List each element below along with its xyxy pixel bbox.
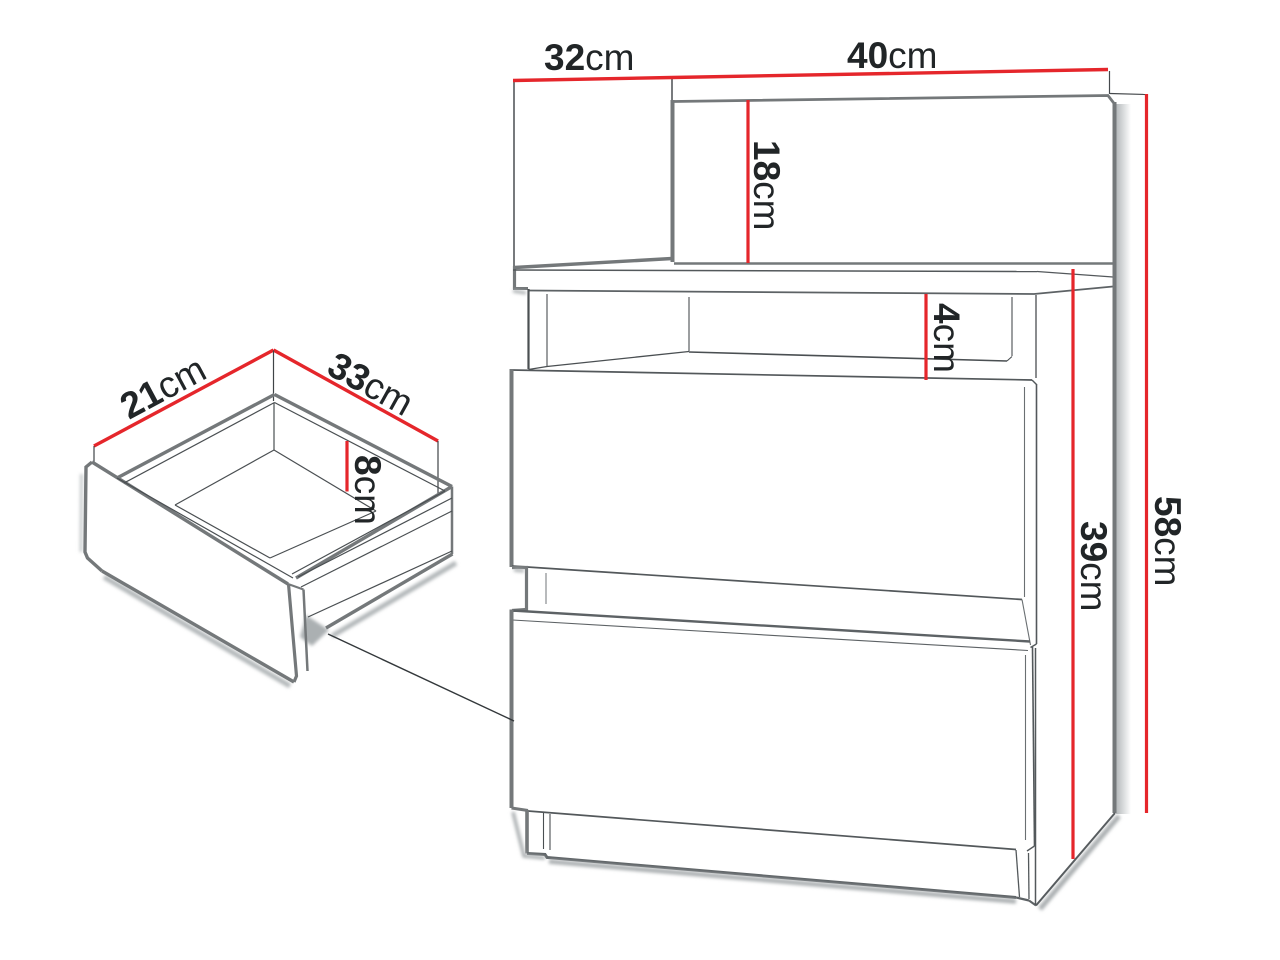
svg-text:8cm: 8cm [347, 455, 388, 525]
svg-text:18cm: 18cm [746, 140, 787, 230]
svg-text:32cm: 32cm [544, 37, 634, 78]
svg-text:39cm: 39cm [1073, 521, 1114, 611]
svg-text:58cm: 58cm [1147, 496, 1188, 586]
svg-text:4cm: 4cm [926, 303, 967, 373]
svg-text:40cm: 40cm [847, 35, 937, 76]
